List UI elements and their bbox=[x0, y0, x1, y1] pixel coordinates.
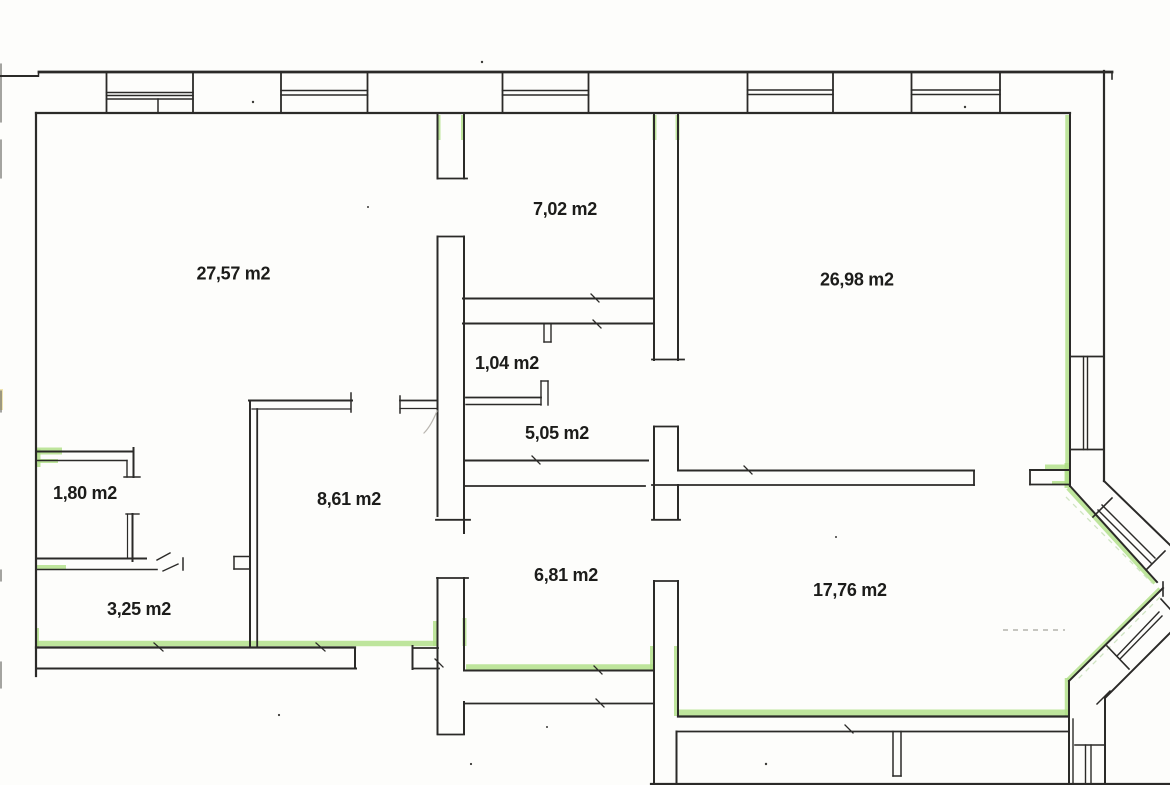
svg-text:17,76 m2: 17,76 m2 bbox=[813, 580, 887, 600]
svg-text:1,04 m2: 1,04 m2 bbox=[475, 353, 539, 373]
svg-text:1,80 m2: 1,80 m2 bbox=[53, 483, 117, 503]
svg-text:27,57 m2: 27,57 m2 bbox=[197, 264, 271, 284]
svg-text:8,61 m2: 8,61 m2 bbox=[317, 489, 381, 509]
svg-text:7,02 m2: 7,02 m2 bbox=[533, 199, 597, 219]
svg-text:6,81 m2: 6,81 m2 bbox=[534, 565, 598, 585]
svg-text:5,05 m2: 5,05 m2 bbox=[525, 423, 589, 443]
svg-text:26,98 m2: 26,98 m2 bbox=[820, 270, 894, 290]
svg-text:3,25 m2: 3,25 m2 bbox=[107, 599, 171, 619]
